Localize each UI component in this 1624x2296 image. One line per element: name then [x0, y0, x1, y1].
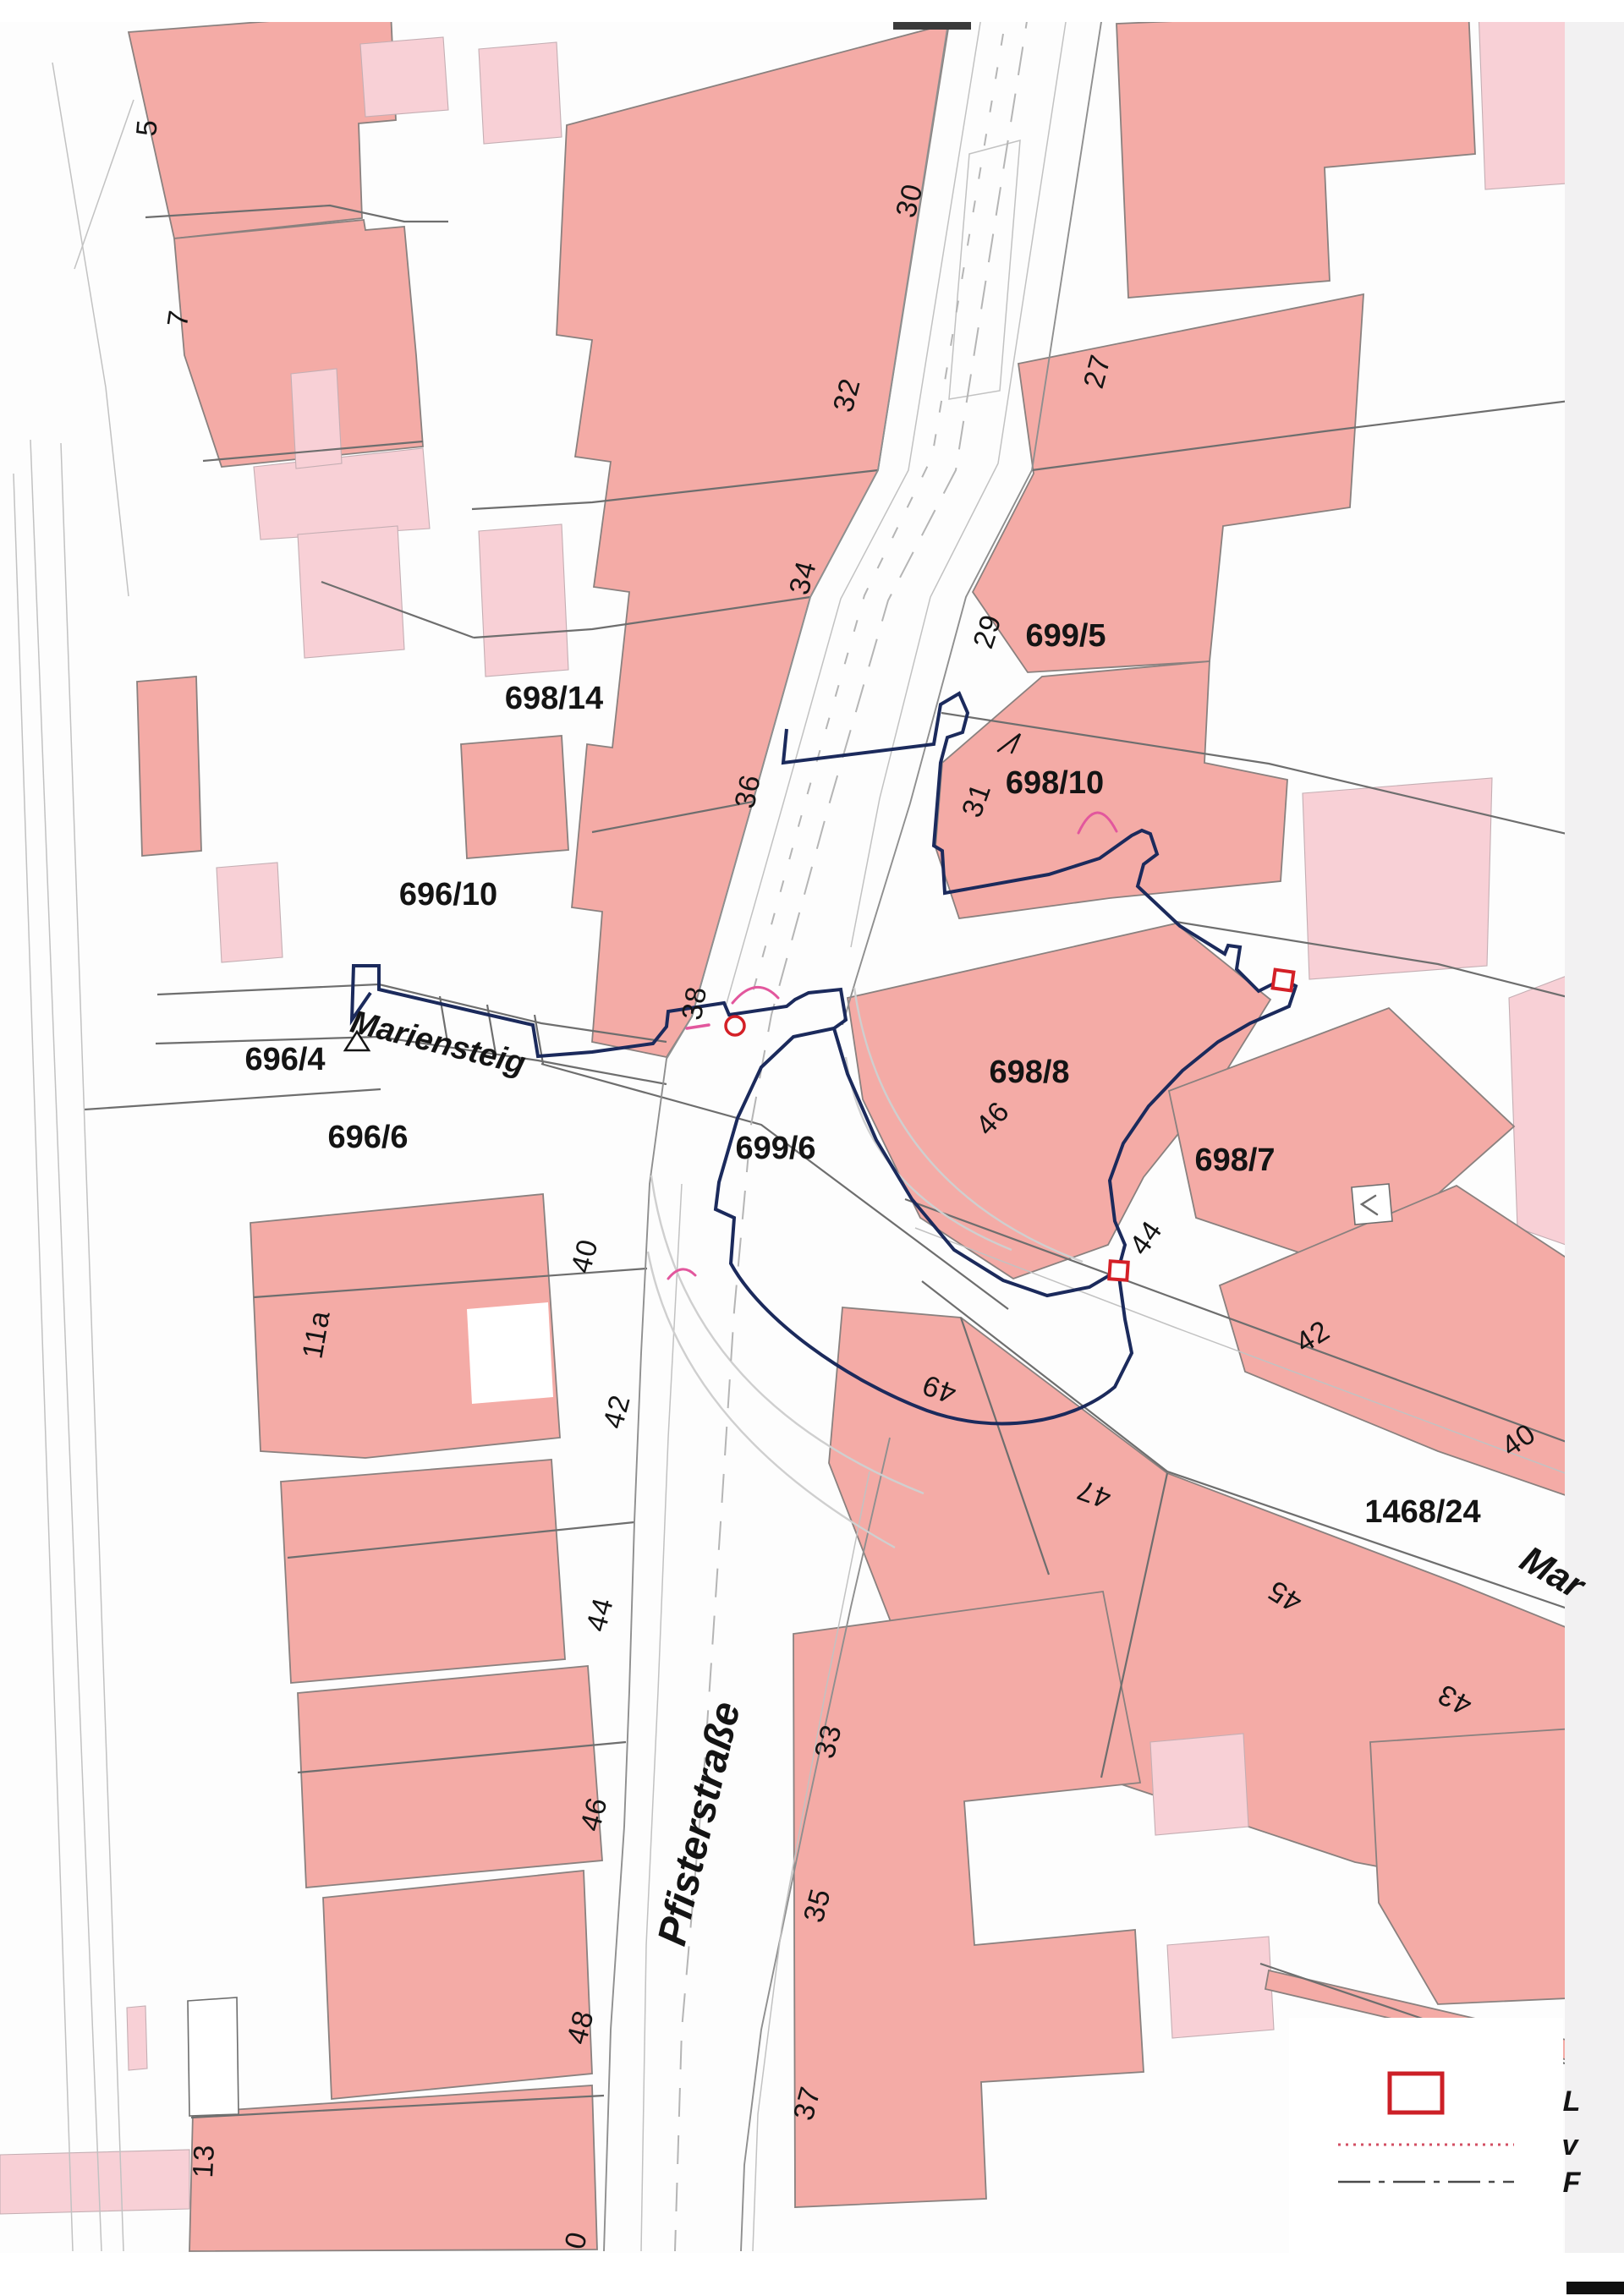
scan-edge — [0, 0, 1624, 22]
house-number-label: 42 — [597, 1391, 637, 1432]
house-number-label: 13 — [187, 2144, 221, 2179]
parcel-number-label: 1468/24 — [1364, 1494, 1480, 1530]
scan-edge — [0, 2253, 1624, 2296]
parcel-number-label: 699/6 — [735, 1131, 815, 1166]
parcel-number-label: 696/4 — [244, 1042, 325, 1077]
parcel-number-label: 698/14 — [505, 681, 603, 716]
building-annex — [479, 524, 568, 677]
parcel-number-label: 698/10 — [1006, 765, 1104, 801]
building-annex — [217, 863, 283, 962]
road-line-thin — [30, 440, 101, 2251]
parcel-number-label: 698/8 — [989, 1055, 1069, 1090]
building-annex — [479, 42, 562, 144]
building-annex — [0, 2150, 189, 2214]
building — [129, 12, 396, 238]
building-annex — [1150, 1734, 1248, 1835]
legend-red-square — [1390, 2074, 1442, 2112]
courtyard — [188, 1997, 239, 2116]
building-annex — [1167, 1937, 1274, 2038]
magenta-arc-mark — [732, 987, 778, 1003]
building — [298, 1666, 602, 1888]
parcel-boundary-line — [85, 1089, 381, 1110]
courtyard — [467, 1302, 553, 1404]
building-annex — [127, 2006, 147, 2070]
building — [973, 294, 1363, 672]
street-name-label: Pfisterstraße — [650, 1698, 749, 1950]
magenta-arc-mark — [668, 1269, 695, 1279]
magenta-arc-mark — [687, 1025, 709, 1028]
survey-point-square — [1273, 970, 1294, 991]
building — [281, 1460, 565, 1683]
legend-box — [1289, 2018, 1563, 2256]
house-number-label: 44 — [1123, 1214, 1169, 1260]
parcel-number-label: 696/6 — [327, 1120, 408, 1155]
road-line-thin — [74, 100, 134, 269]
survey-point-square — [1109, 1261, 1127, 1280]
house-number-label: 36 — [729, 771, 767, 811]
building — [461, 736, 568, 858]
cadastral-map: 573032343638404244464801311a272931333537… — [0, 0, 1624, 2296]
building — [137, 677, 201, 856]
building-annex — [1303, 778, 1492, 979]
legend-letter-label: L — [1563, 2085, 1581, 2118]
house-number-label: 38 — [676, 984, 713, 1022]
scan-edge — [1565, 0, 1624, 2296]
building — [323, 1871, 592, 2099]
house-number-label: 44 — [580, 1594, 620, 1635]
house-number-label: 40 — [565, 1236, 605, 1276]
cadastral-map-page: 573032343638404244464801311a272931333537… — [0, 0, 1624, 2296]
building — [793, 1592, 1144, 2207]
parcel-number-label: 698/7 — [1194, 1143, 1275, 1178]
road-line-thin — [949, 140, 1020, 399]
building-annex — [360, 37, 448, 117]
courtyard — [1352, 1184, 1392, 1225]
legend-letter-label: F — [1563, 2167, 1582, 2199]
parcel-number-label: 699/5 — [1025, 618, 1106, 654]
scan-black-bar — [1566, 2282, 1624, 2294]
road-line-thin — [641, 1184, 682, 2251]
road-line-thin — [14, 474, 73, 2251]
scan-edge — [893, 22, 971, 30]
parcel-number-label: 696/10 — [399, 877, 497, 912]
building — [189, 2085, 597, 2251]
building — [557, 24, 949, 1057]
street-name-label: Mariensteig — [347, 1004, 529, 1082]
house-number-label: 5 — [130, 118, 164, 137]
building-annex — [291, 369, 342, 469]
road-line-thin — [61, 443, 123, 2251]
survey-point-circle — [726, 1016, 744, 1035]
building — [1116, 8, 1475, 298]
legend-letter-label: v — [1562, 2129, 1580, 2162]
